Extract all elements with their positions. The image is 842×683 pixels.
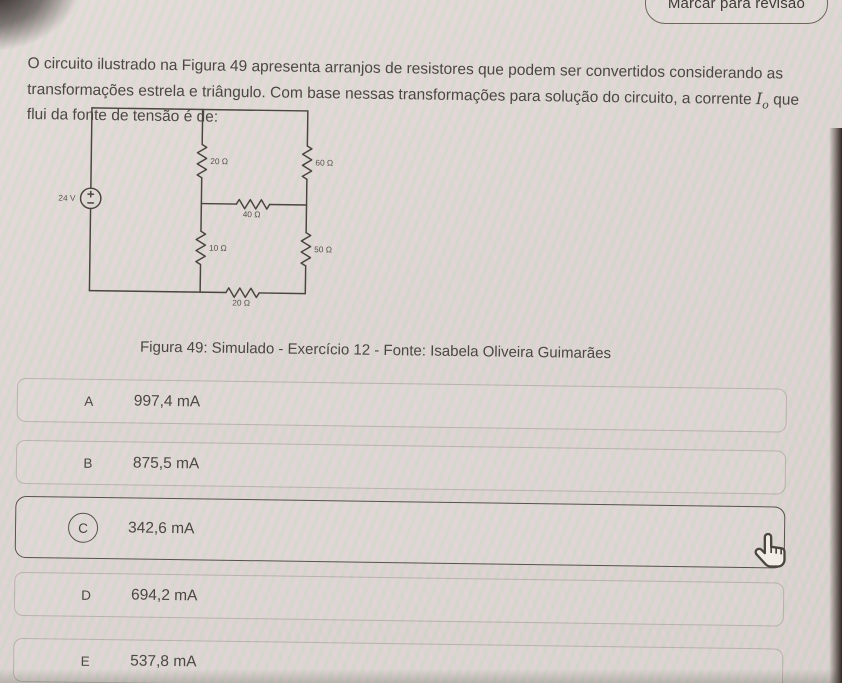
circuit-figure: 24 V 20 Ω 60 Ω 40 Ω 10 Ω 50 Ω 20 Ω — [54, 97, 343, 313]
wire-left — [89, 108, 92, 291]
option-b-letter: B — [73, 455, 103, 470]
option-e-value: 537,8 mA — [130, 652, 197, 671]
option-d-letter: D — [71, 587, 101, 602]
option-row-c-selected[interactable]: C 342,6 mA — [15, 496, 786, 569]
resistor-bottom-middle — [196, 231, 206, 264]
wire-top — [92, 108, 308, 111]
option-b-value: 875,5 mA — [133, 454, 200, 473]
option-row-a[interactable]: A 997,4 mA — [17, 378, 788, 433]
option-d-value: 694,2 mA — [131, 586, 198, 605]
option-c-value: 342,6 mA — [128, 519, 195, 538]
page-content: O circuito ilustrado na Figura 49 aprese… — [0, 0, 842, 683]
option-c-letter: C — [68, 513, 98, 543]
resistor-bottom-right — [301, 233, 311, 266]
option-a-value: 997,4 mA — [134, 392, 201, 411]
voltage-source-label: 24 V — [58, 193, 76, 203]
circuit-diagram: 24 V 20 Ω 60 Ω 40 Ω 10 Ω 50 Ω 20 Ω — [54, 97, 343, 313]
figure-caption: Figura 49: Simulado - Exercício 12 - Fon… — [0, 337, 756, 365]
resistor-bottom — [226, 288, 259, 298]
option-a-letter: A — [74, 393, 104, 408]
wire-bottom — [89, 291, 305, 294]
resistor-top-right — [302, 146, 312, 179]
resistor-bottom-label: 20 Ω — [232, 297, 250, 307]
resistor-middle — [236, 199, 269, 209]
voltage-source-icon: 24 V — [58, 188, 101, 209]
current-symbol: Io — [756, 89, 769, 108]
resistor-top-right-label: 60 Ω — [315, 157, 333, 167]
option-row-b[interactable]: B 875,5 mA — [16, 440, 787, 495]
option-row-d[interactable]: D 694,2 mA — [14, 572, 785, 627]
resistor-middle-label: 40 Ω — [243, 209, 261, 219]
resistor-bottom-right-label: 50 Ω — [314, 244, 332, 254]
option-e-letter: E — [70, 653, 100, 668]
resistor-bottom-middle-label: 10 Ω — [209, 243, 227, 253]
resistor-top-middle — [197, 144, 207, 177]
resistor-top-middle-label: 20 Ω — [210, 156, 228, 166]
quiz-screen: Marcar para revisão O circuito ilustrado… — [0, 0, 842, 683]
option-row-e[interactable]: E 537,8 mA — [13, 638, 784, 683]
